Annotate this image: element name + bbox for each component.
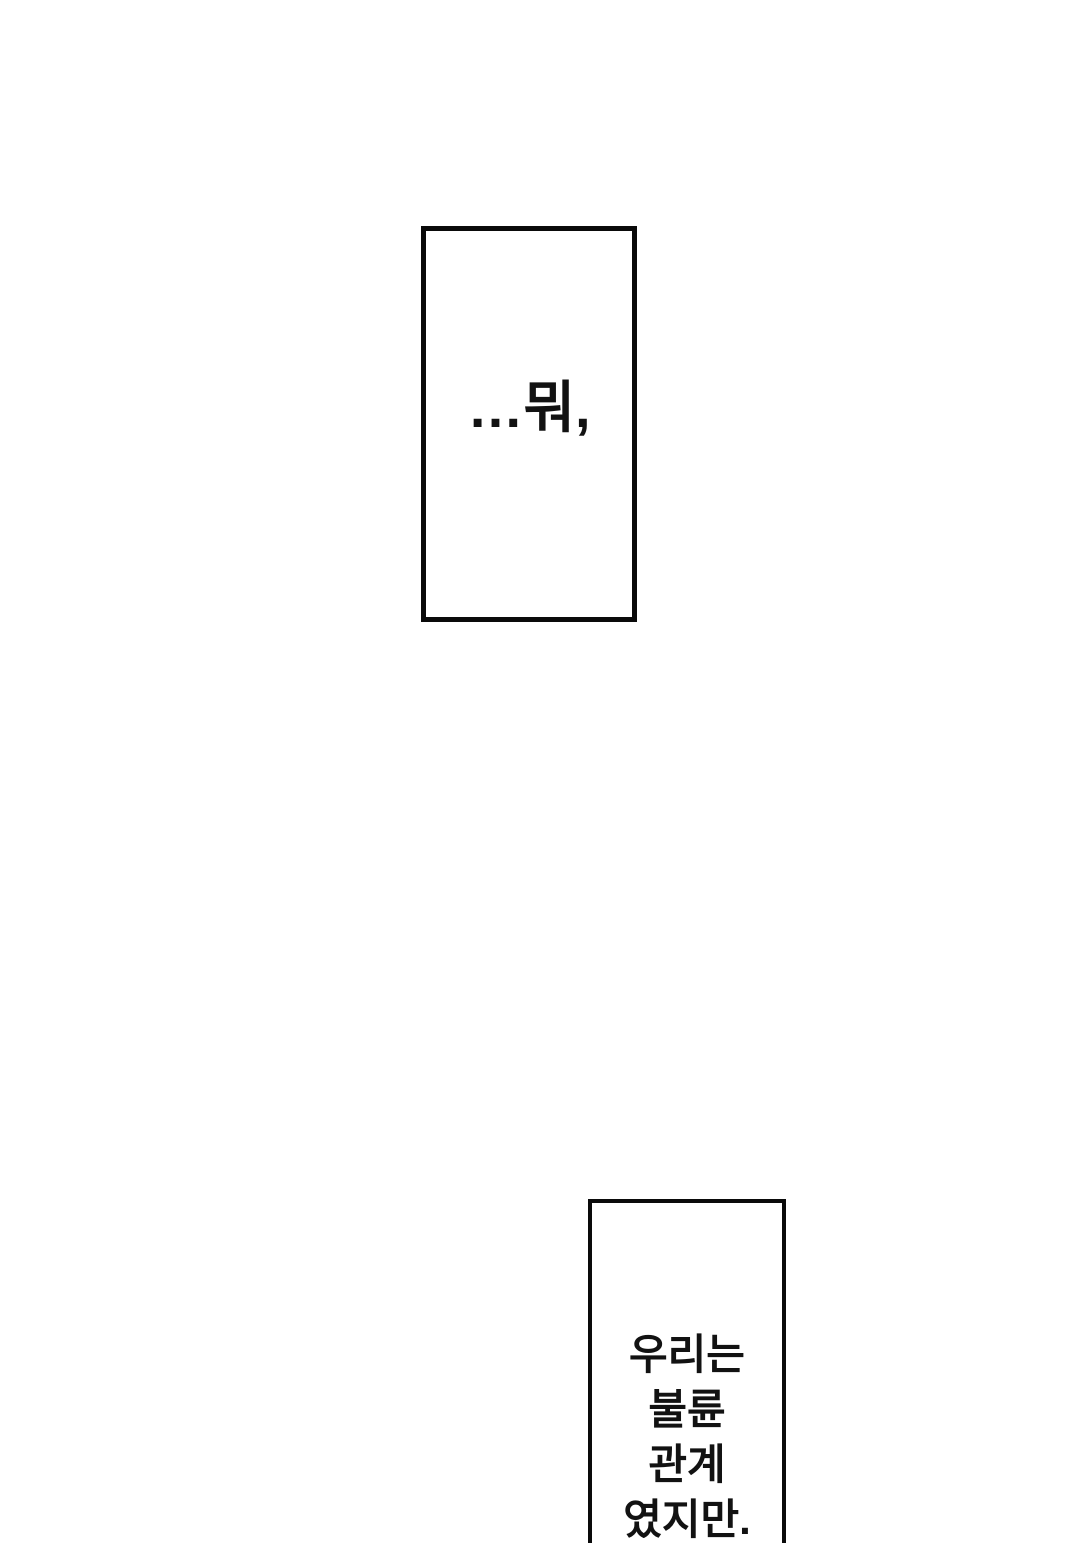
caption-line-1: 우리는 xyxy=(592,1327,782,1382)
caption-panel-bottom: 우리는 불륜 관계 였지만. xyxy=(588,1199,786,1543)
caption-line-3: 관계 xyxy=(592,1437,782,1492)
comic-page: …뭐, 우리는 불륜 관계 였지만. xyxy=(0,0,1080,1543)
caption-line-2: 불륜 xyxy=(592,1382,782,1437)
caption-text-top: …뭐, xyxy=(467,363,590,444)
caption-line-4: 였지만. xyxy=(592,1492,782,1543)
caption-panel-top: …뭐, xyxy=(421,226,637,622)
